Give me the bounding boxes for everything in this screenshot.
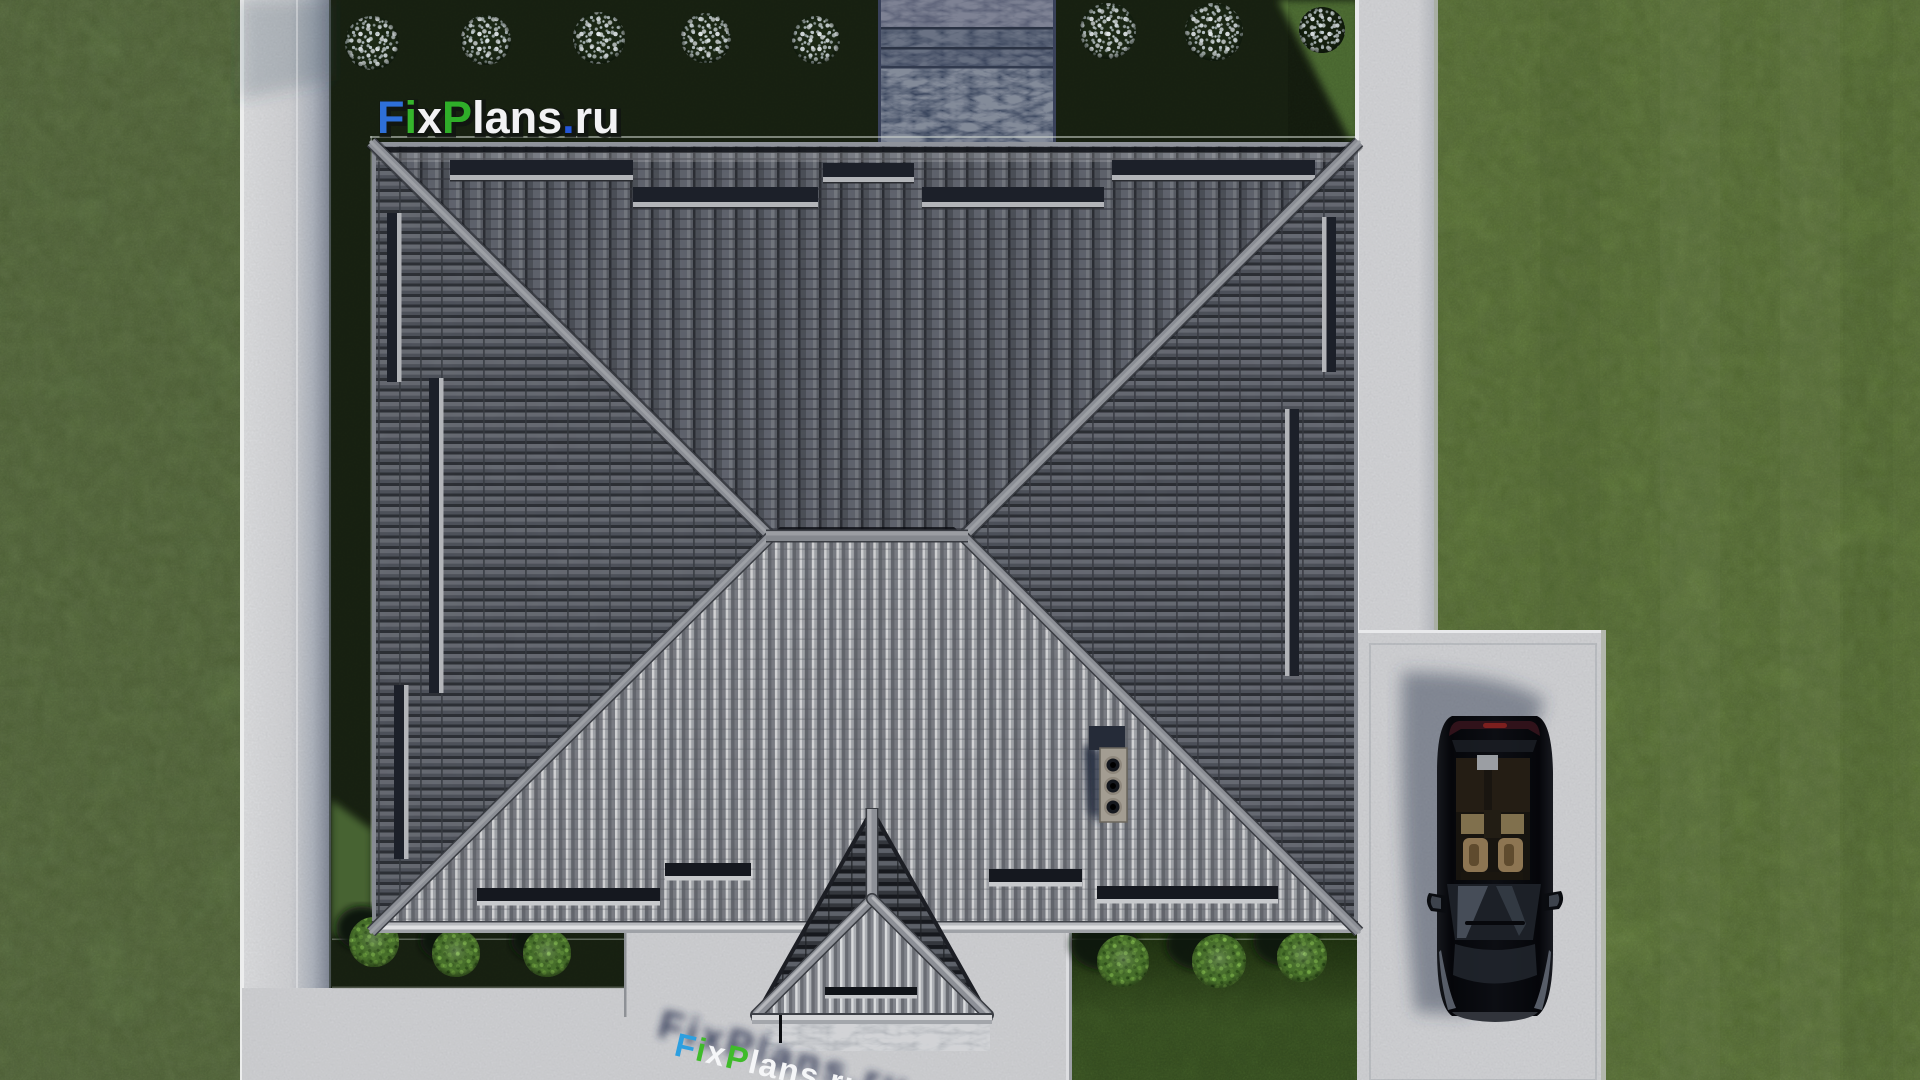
- svg-text:FixPlans.ru: FixPlans.ru: [377, 92, 620, 143]
